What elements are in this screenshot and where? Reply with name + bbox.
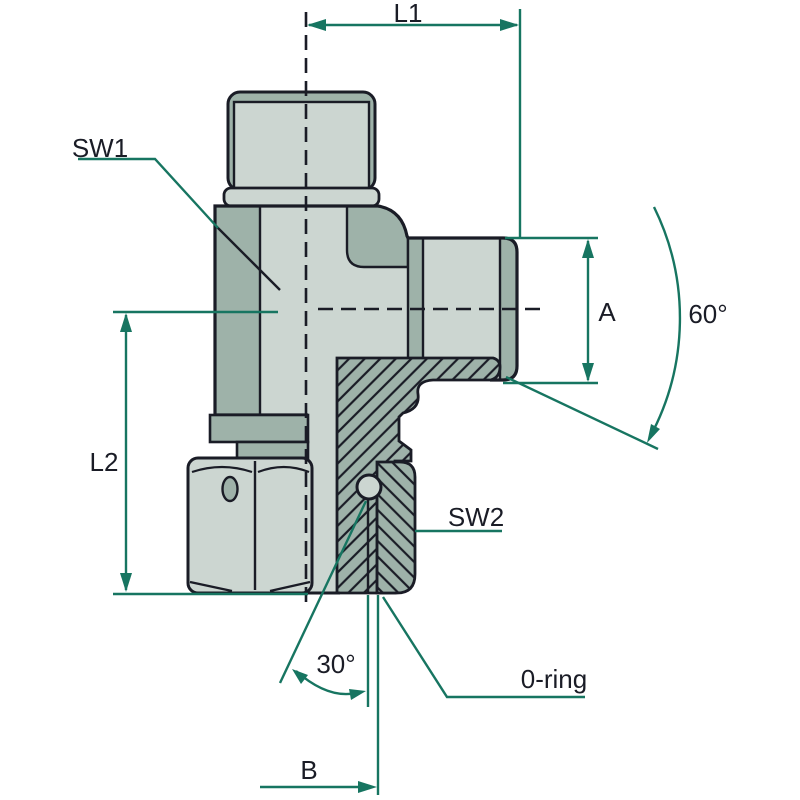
top-stud [224,92,379,206]
top-stud-face [234,102,369,189]
label-a: A [598,297,616,327]
cone-angle-arrow-left [292,669,308,684]
l1-arrow-left [307,19,326,31]
b-arrow [358,781,377,793]
banjo-bolt-section [337,358,500,593]
technical-drawing-page: L1 SW1 L2 A 60° SW2 30° 0-ring B [0,0,800,800]
a-arrow-bottom [582,363,594,382]
l1-arrow-right [500,19,519,31]
washer-upper [210,415,308,442]
label-cone-angle: 30° [316,649,355,679]
seat-angle-leg [506,377,658,449]
label-b: B [300,755,317,785]
label-sw1: SW1 [72,133,128,163]
washer-lower [237,442,308,458]
l2-arrow-top [120,313,132,332]
body-left-wall [215,206,260,415]
l2-arrow-bottom [120,573,132,592]
label-seat-angle: 60° [688,299,727,329]
nut-hole [223,477,238,501]
top-stud-neck [224,188,379,206]
o-ring [357,475,381,499]
seat-angle-arrow [647,424,660,443]
label-oring: 0-ring [521,664,587,694]
label-sw2: SW2 [448,502,504,532]
seat-angle-arc [650,207,680,437]
a-arrow-top [582,239,594,258]
fitting-cross-section-drawing: L1 SW1 L2 A 60° SW2 30° 0-ring B [0,0,800,800]
cone-angle-arrow-right [349,689,366,700]
label-l1: L1 [394,0,423,28]
sw1-leader [78,159,218,228]
swivel-hex-nut [188,458,312,593]
lower-nut-section [377,462,415,593]
label-l2: L2 [90,447,119,477]
